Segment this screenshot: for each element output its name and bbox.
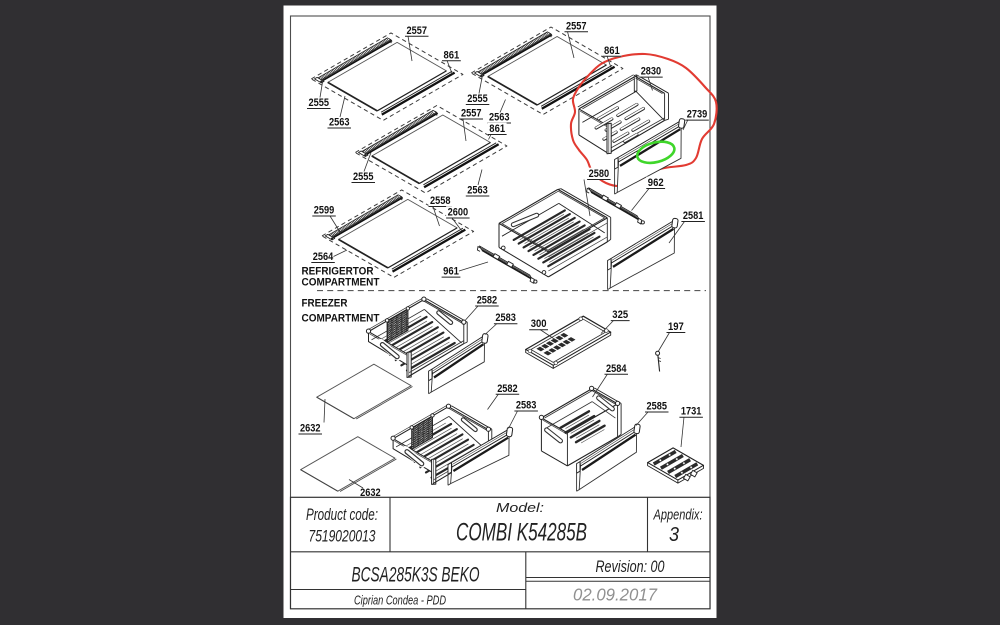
svg-text:2581: 2581 [683, 210, 704, 222]
svg-text:2583: 2583 [516, 400, 537, 412]
svg-text:861: 861 [489, 123, 505, 135]
svg-text:2599: 2599 [314, 205, 335, 217]
svg-text:2555: 2555 [353, 171, 374, 183]
svg-text:2557: 2557 [461, 108, 482, 120]
svg-text:2582: 2582 [497, 383, 518, 395]
svg-text:2632: 2632 [300, 423, 321, 435]
svg-text:Ciprian Condea - PDD: Ciprian Condea - PDD [354, 593, 446, 607]
svg-text:Model:: Model: [496, 500, 544, 515]
svg-text:2563: 2563 [329, 117, 350, 129]
svg-text:2557: 2557 [407, 25, 428, 37]
svg-text:961: 961 [443, 266, 459, 278]
svg-text:2830: 2830 [641, 66, 662, 78]
svg-text:2600: 2600 [448, 207, 469, 219]
svg-text:2563: 2563 [467, 185, 488, 197]
svg-text:962: 962 [648, 177, 664, 189]
svg-text:861: 861 [444, 49, 460, 61]
svg-text:7519020013: 7519020013 [309, 527, 376, 546]
svg-text:BCSA285K3S BEKO: BCSA285K3S BEKO [352, 564, 480, 587]
svg-text:2582: 2582 [477, 295, 498, 307]
svg-text:2739: 2739 [687, 109, 708, 121]
svg-text:2583: 2583 [495, 312, 516, 324]
svg-text:COMPARTMENT: COMPARTMENT [302, 277, 380, 289]
svg-text:FREEZER: FREEZER [302, 298, 348, 310]
svg-text:2580: 2580 [589, 168, 610, 180]
svg-text:300: 300 [531, 318, 547, 330]
svg-text:Appendix:: Appendix: [653, 507, 703, 524]
svg-text:197: 197 [668, 321, 684, 333]
svg-text:2555: 2555 [309, 97, 330, 109]
svg-text:Product code:: Product code: [306, 506, 378, 524]
svg-text:2584: 2584 [606, 363, 627, 375]
svg-text:COMPARTMENT: COMPARTMENT [302, 313, 380, 325]
svg-text:2563: 2563 [489, 112, 510, 124]
svg-text:2564: 2564 [313, 251, 334, 263]
svg-text:2555: 2555 [467, 93, 488, 105]
svg-text:2558: 2558 [430, 195, 451, 207]
svg-text:3: 3 [669, 524, 679, 546]
svg-text:COMBI K54285B: COMBI K54285B [456, 519, 587, 547]
svg-text:02.09.2017: 02.09.2017 [573, 585, 658, 605]
svg-text:2557: 2557 [566, 20, 587, 32]
svg-text:1731: 1731 [681, 406, 702, 418]
svg-text:Revision: 00: Revision: 00 [596, 557, 665, 576]
svg-text:861: 861 [604, 45, 620, 57]
svg-text:325: 325 [612, 309, 628, 321]
svg-text:2585: 2585 [647, 401, 668, 413]
